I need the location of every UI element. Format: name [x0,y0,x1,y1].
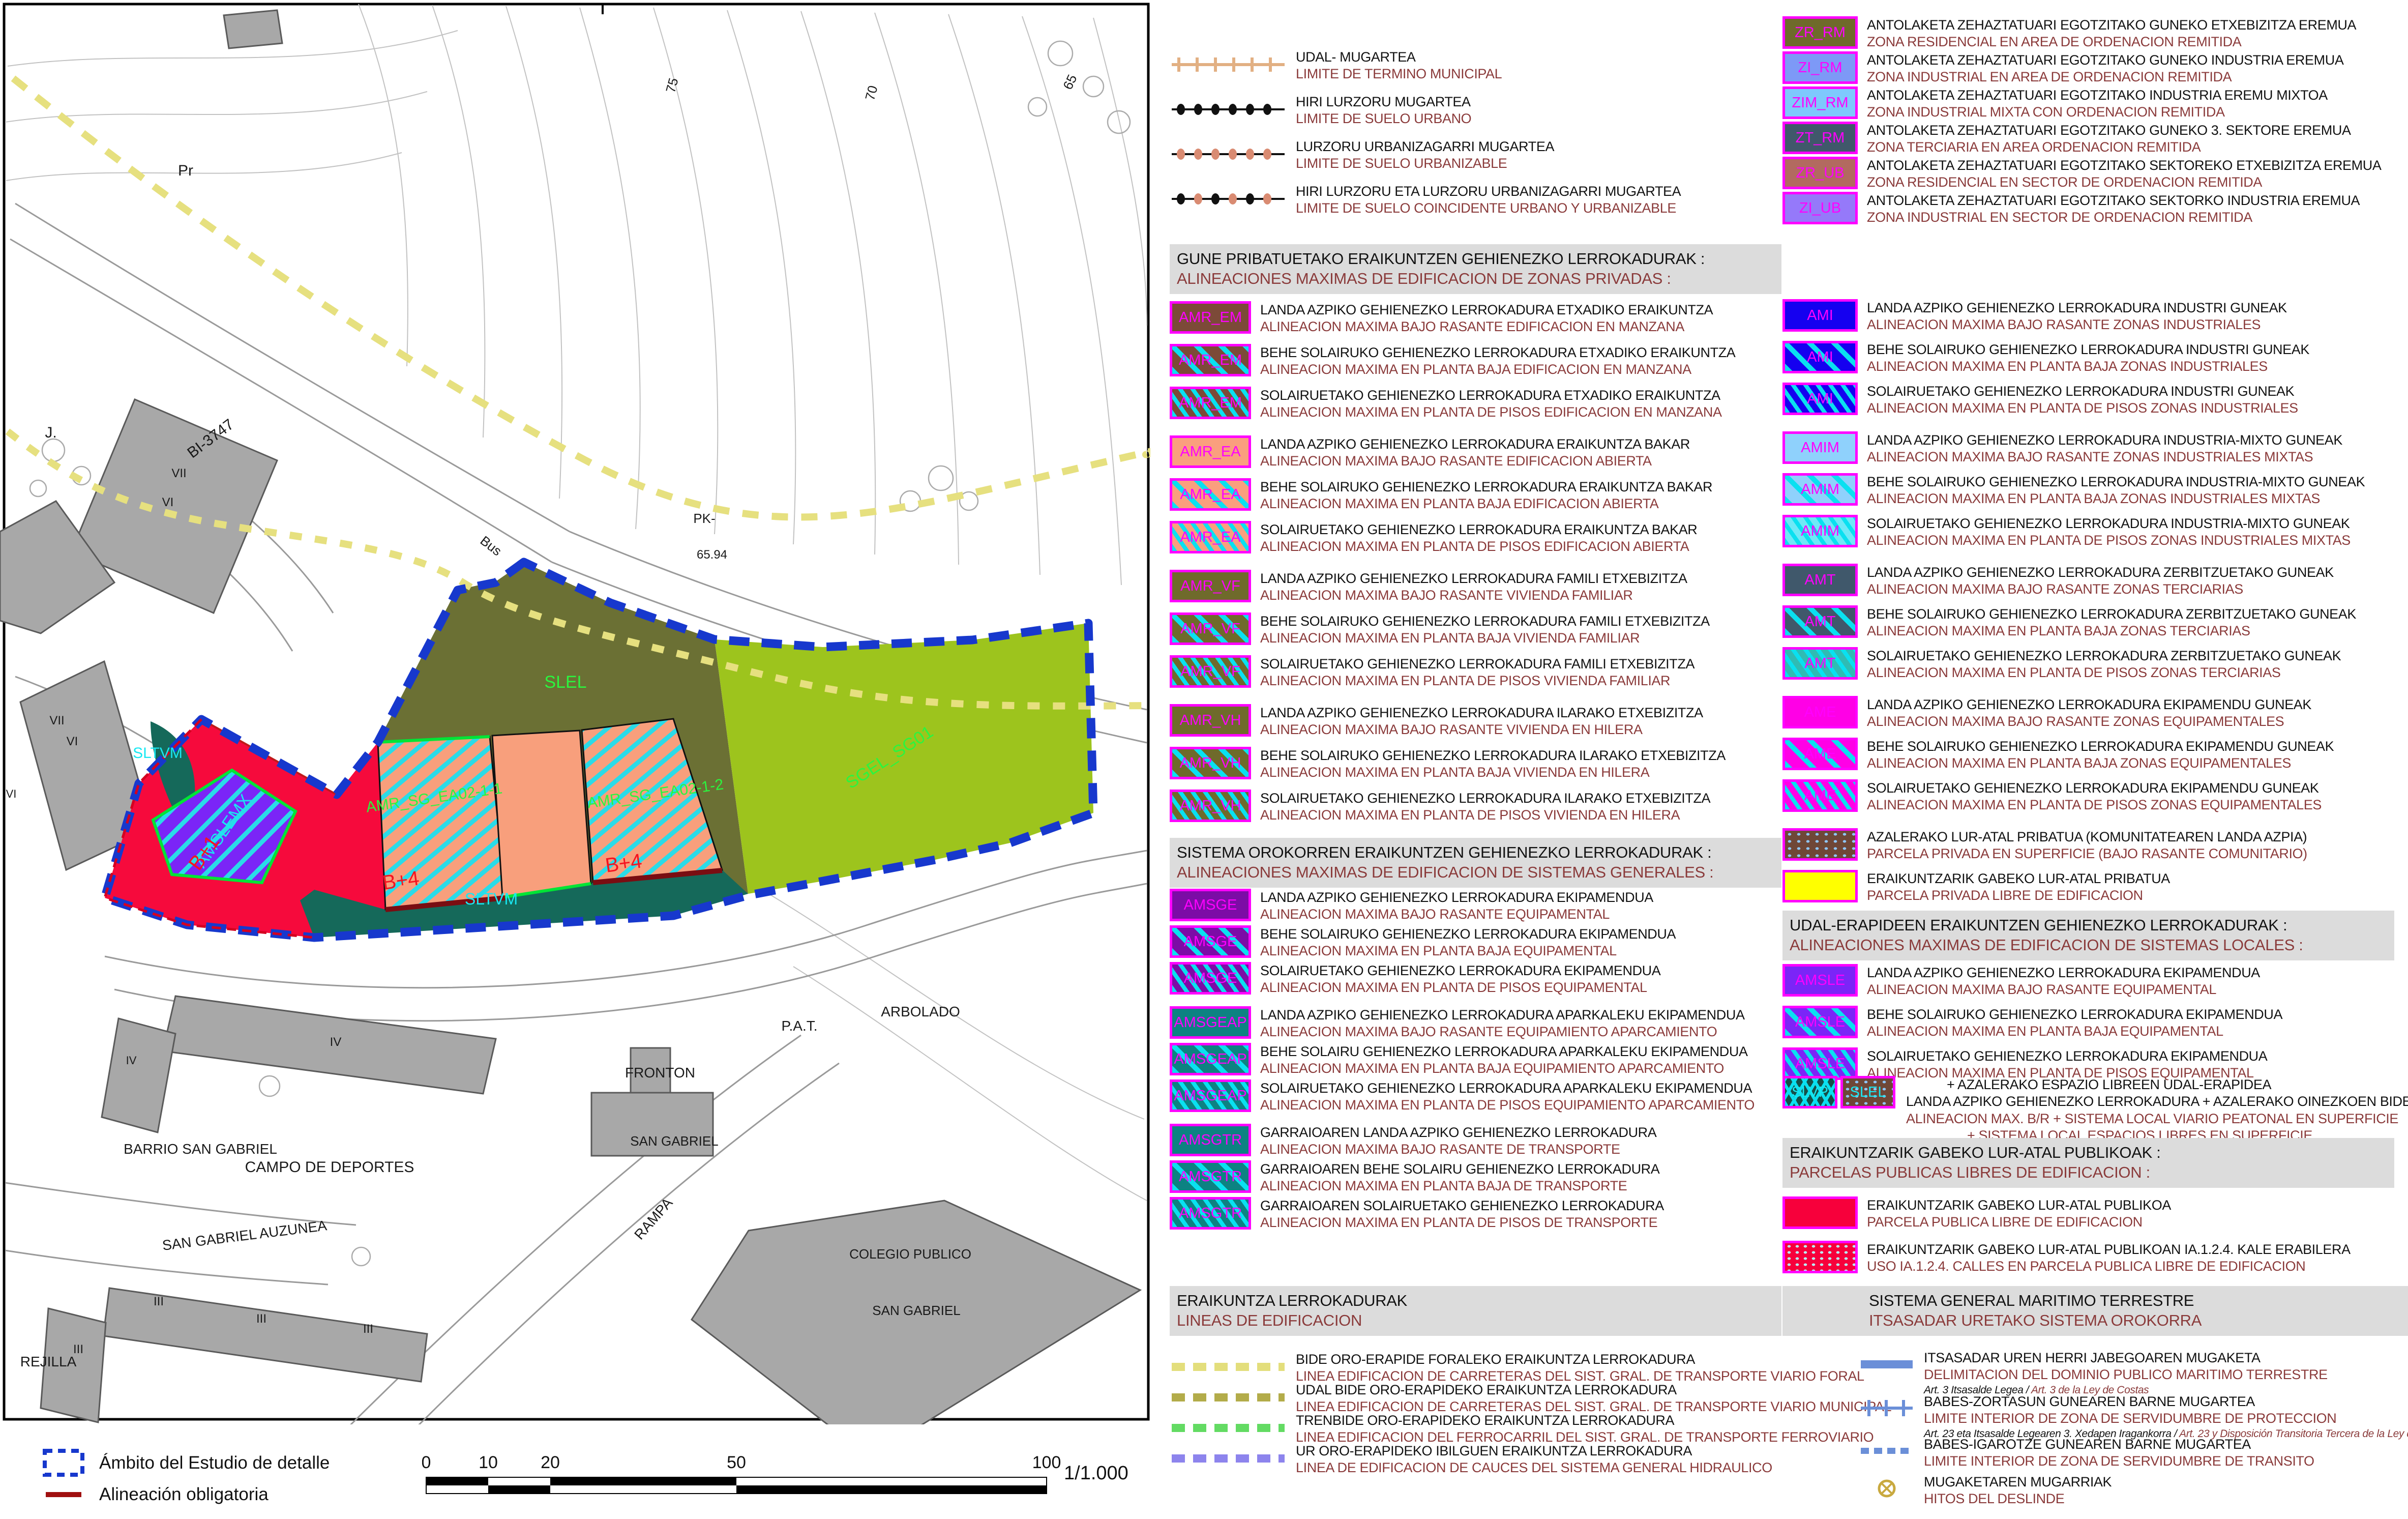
hiri-eta-urbanizagarri-mugartea-icon [1170,183,1287,218]
swatch-zr-rm-solid-icon: ZR_RM [1782,16,1858,49]
item-text-eu: SOLAIRUETAKO GEHIENEZKO LERROKADURA ETXA… [1260,387,1722,404]
map-label-iv: IV [126,1054,137,1067]
item-text-es: ALINEACION MAXIMA EN PLANTA DE PISOS EDI… [1260,538,1697,555]
item-text-eu: UDAL- MUGARTEA [1296,49,1502,66]
legend-item-hiri-eta-urbanizagarri-mugartea: HIRI LURZORU ETA LURZORU URBANIZAGARRI M… [1170,183,1681,218]
swatch-zt-rm-solid-icon: ZT_RM [1782,122,1858,154]
svg-text:0: 0 [422,1454,431,1472]
item-text-eu: LANDA AZPIKO GEHIENEZKO LERROKADURA ERAI… [1260,436,1690,453]
item-text-es: ALINEACION MAXIMA EN PLANTA DE PISOS ZON… [1867,664,2341,681]
legend-item-servidumbre-transito: BABES-IGAROTZE GUNEAREN BARNE MUGARTEALI… [1782,1436,2314,1470]
item-text-eu: BIDE ORO-ERAPIDE FORALEKO ERAIKUNTZA LER… [1296,1351,1864,1368]
swatch-amsge-solid-icon: AMSGE [1170,889,1251,921]
item-text-es: ALINEACION MAXIMA EN PLANTA DE PISOS DE … [1260,1214,1664,1231]
legend-column-left: UDAL- MUGARTEALIMITE DE TERMINO MUNICIPA… [1170,0,1782,1519]
swatch-amsgtr-sparse-icon: AMSGTR [1170,1160,1251,1193]
swatch-amim-dense-icon: AMIM [1782,515,1858,547]
legend-item-parcela-publica-calles: ERAIKUNTZARIK GABEKO LUR-ATAL PUBLIKOAN … [1782,1241,2351,1275]
item-text-es: ALINEACION MAXIMA EN PLANTA BAJA VIVIEND… [1260,764,1726,781]
map-label-65-94: 65.94 [697,548,727,562]
map-label-iii: III [256,1312,266,1326]
swatch-amsle-sparse-icon: AMSLE [1782,1006,1858,1038]
item-text-eu: BABES-IGAROTZE GUNEAREN BARNE MUGARTEA [1924,1436,2314,1453]
map-label-vi: VI [162,495,174,509]
legend-item-zi-rm: ZI_RMANTOLAKETA ZEHAZTATUARI EGOTZITAKO … [1782,51,2343,86]
swatch-amr-vh-sparse-icon: AMR_VH [1170,747,1251,779]
item-text-eu: BABES-ZORTASUN GUNEAREN BARNE MUGARTEA [1924,1393,2408,1410]
item-text-eu: LURZORU URBANIZAGARRI MUGARTEA [1296,138,1554,155]
item-text-es: ALINEACION MAXIMA EN PLANTA DE PISOS EQU… [1260,1097,1755,1114]
item-text-es: ALINEACION MAXIMA EN PLANTA BAJA EDIFICA… [1260,495,1712,512]
svg-text:100: 100 [1032,1454,1061,1472]
item-text-es: LIMITE DE TERMINO MUNICIPAL [1296,66,1502,82]
header-es: ALINEACIONES MAXIMAS DE EDIFICACION DE S… [1177,863,1774,883]
item-text-eu: SOLAIRUETAKO GEHIENEZKO LERROKADURA EKIP… [1867,1048,2267,1065]
header-eu: UDAL-ERAPIDEEN ERAIKUNTZEN GEHIENEZKO LE… [1790,916,2387,936]
swatch-zi-rm-solid-icon: ZI_RM [1782,51,1858,84]
legend-item-amr-vh: AMR_VHSOLAIRUETAKO GEHIENEZKO LERROKADUR… [1170,790,1710,824]
legend-item-amr-ea: AMR_EABEHE SOLAIRUKO GEHIENEZKO LERROKAD… [1170,478,1712,513]
legend-item-dominio-publico-maritimo: ITSASADAR UREN HERRI JABEGOAREN MUGAKETA… [1782,1349,2328,1397]
svg-text:10: 10 [479,1454,498,1472]
legend-item-hiri-lurzoru-mugartea: HIRI LURZORU MUGARTEALIMITE DE SUELO URB… [1170,93,1471,128]
legend-item-amsge: AMSGESOLAIRUETAKO GEHIENEZKO LERROKADURA… [1170,962,1660,997]
item-text-eu: SOLAIRUETAKO GEHIENEZKO LERROKADURA INDU… [1867,515,2351,532]
item-text-es: ALINEACION MAXIMA BAJO RASANTE VIVIENDA … [1260,721,1703,738]
legend-item-ame: AMELANDA AZPIKO GEHIENEZKO LERROKADURA E… [1782,696,2311,731]
item-text-es: ALINEACION MAXIMA EN PLANTA BAJA EQUIPAM… [1260,1060,1748,1077]
legend-item-amr-vf: AMR_VFBEHE SOLAIRUKO GEHIENEZKO LERROKAD… [1170,612,1710,647]
servidumbre-proteccion-icon [1859,1393,1915,1426]
item-text-es: ALINEACION MAXIMA EN PLANTA DE PISOS VIV… [1260,807,1710,824]
legend-item-ami: AMILANDA AZPIKO GEHIENEZKO LERROKADURA I… [1782,299,2287,334]
legend-item-linea-hidraulico: UR ORO-ERAPIDEKO IBILGUEN ERAIKUNTZA LER… [1170,1442,1772,1477]
legend-item-servidumbre-proteccion: BABES-ZORTASUN GUNEAREN BARNE MUGARTEALI… [1782,1393,2408,1441]
swatch-amr-ea-dense-icon: AMR_EA [1170,521,1251,553]
plan-sheet: PrBI-3747J.BusPK-65.94757065VIIVIVIIVIVI… [0,0,2408,1519]
item-text-es: LIMITE DE SUELO COINCIDENTE URBANO Y URB… [1296,200,1681,217]
swatch-ami-solid-icon: AMI [1782,299,1858,332]
item-text-eu: BEHE SOLAIRUKO GEHIENEZKO LERROKADURA IN… [1867,474,2365,490]
legend-ambito: Ámbito del Estudio de detalle [40,1447,330,1479]
map-label-vii: VII [171,466,186,480]
swatch-amr-ea-sparse-icon: AMR_EA [1170,478,1251,511]
linea-hidraulico-icon [1170,1442,1287,1477]
legend-item-amt: AMTSOLAIRUETAKO GEHIENEZKO LERROKADURA Z… [1782,647,2341,682]
swatch-slel: SLEL [1840,1076,1895,1108]
swatch-amr-em-dense-icon: AMR_EM [1170,387,1251,419]
swatch-parcela-publica-calles-reddots-icon [1782,1241,1858,1273]
item-text-eu: HIRI LURZORU ETA LURZORU URBANIZAGARRI M… [1296,183,1681,200]
item-text-es: ZONA INDUSTRIAL MIXTA CON ORDENACION REM… [1867,104,2328,121]
section-header-eraikuntzarik-gabeko-lur-atal-publikoak: ERAIKUNTZARIK GABEKO LUR-ATAL PUBLIKOAK … [1782,1138,2394,1188]
item-text-es: ALINEACION MAXIMA BAJO RASANTE EQUIPAMEN… [1867,981,2260,998]
map-label-barrio-san-gabriel: BARRIO SAN GABRIEL [124,1141,277,1157]
item-text-es: ZONA INDUSTRIAL EN AREA DE ORDENACION RE… [1867,69,2343,85]
map-label-sltvm: SLTVM [133,745,183,762]
item-text-es: DELIMITACION DEL DOMINIO PUBLICO MARITIM… [1924,1366,2328,1383]
item-text-es: ALINEACION MAXIMA EN PLANTA BAJA EDIFICA… [1260,361,1735,378]
header-es: LINEAS DE EDIFICACION [1177,1311,1774,1331]
site-plan-map: PrBI-3747J.BusPK-65.94757065VIIVIVIIVIVI… [0,0,1150,1424]
swatch-amr-vf-sparse-icon: AMR_VF [1170,612,1251,645]
map-label-vii: VII [49,714,64,727]
legend-item-udal-mugartea: UDAL- MUGARTEALIMITE DE TERMINO MUNICIPA… [1170,48,1502,83]
alineacion-label: Alineación obligatoria [99,1484,269,1505]
item-text-es: ALINEACION MAXIMA BAJO RASANTE ZONAS EQU… [1867,713,2311,730]
header-eu: SISTEMA OROKORREN ERAIKUNTZEN GEHIENEZKO… [1177,843,1774,863]
map-label-fronton: FRONTON [625,1065,695,1080]
item-text-es: ZONA RESIDENCIAL EN AREA DE ORDENACION R… [1867,34,2356,50]
legend-item-amr-ea: AMR_EALANDA AZPIKO GEHIENEZKO LERROKADUR… [1170,435,1690,470]
item-text-es: ALINEACION MAXIMA BAJO RASANTE EQUIPAMEN… [1260,906,1653,923]
item-text-eu: BEHE SOLAIRUKO GEHIENEZKO LERROKADURA ET… [1260,344,1735,361]
item-text-es: LIMITE INTERIOR DE ZONA DE SERVIDUMBRE D… [1924,1453,2314,1470]
header-es: PARCELAS PUBLICAS LIBRES DE EDIFICACION … [1790,1163,2387,1183]
legend-item-ame: AMEBEHE SOLAIRUKO GEHIENEZKO LERROKADURA… [1782,738,2334,772]
item-text-eu: BEHE SOLAIRUKO GEHIENEZKO LERROKADURA ER… [1260,479,1712,495]
map-label-colegio-publico: COLEGIO PUBLICO [849,1246,971,1262]
item-text-es: ALINEACION MAXIMA EN PLANTA BAJA VIVIEND… [1260,630,1710,647]
item-text-es: ZONA INDUSTRIAL EN SECTOR DE ORDENACION … [1867,209,2360,226]
item-text-eu: ANTOLAKETA ZEHAZTATUARI EGOTZITAKO SEKTO… [1867,192,2360,209]
legend-item-parcela-privada-libre: ERAIKUNTZARIK GABEKO LUR-ATAL PRIBATUAPA… [1782,870,2170,904]
legend-item-amr-vf: AMR_VFSOLAIRUETAKO GEHIENEZKO LERROKADUR… [1170,655,1694,690]
legend-item-amsgeap: AMSGEAPSOLAIRUETAKO GEHIENEZKO LERROKADU… [1170,1079,1755,1114]
item-text-es: USO IA.1.2.4. CALLES EN PARCELA PUBLICA … [1867,1258,2351,1275]
swatch-parcela-publica-libre-solid-icon [1782,1196,1858,1229]
item-text-es: ALINEACION MAXIMA EN PLANTA DE PISOS ZON… [1867,532,2351,549]
item-text-eu: LANDA AZPIKO GEHIENEZKO LERROKADURA EKIP… [1260,889,1653,906]
swatch-amim-sparse-icon: AMIM [1782,473,1858,506]
legend-item-linea-viario-foral: BIDE ORO-ERAPIDE FORALEKO ERAIKUNTZA LER… [1170,1351,1864,1386]
legend-item-amr-em: AMR_EMBEHE SOLAIRUKO GEHIENEZKO LERROKAD… [1170,344,1735,378]
swatch-ame-dense-icon: AME [1782,779,1858,812]
item-text-es: ALINEACION MAXIMA EN PLANTA DE PISOS ZON… [1867,400,2298,417]
legend-item-amsge: AMSGELANDA AZPIKO GEHIENEZKO LERROKADURA… [1170,889,1653,923]
section-header-eraikuntza-lerrokadurak: ERAIKUNTZA LERROKADURAKLINEAS DE EDIFICA… [1170,1286,1781,1336]
map-label-sltvm: SLTVM [465,890,518,908]
item-text-es: LINEA DE EDIFICACION DE CAUCES DEL SISTE… [1296,1459,1772,1476]
swatch-parcela-privada-superficie-dots-icon [1782,828,1858,861]
item-text-eu: LANDA AZPIKO GEHIENEZKO LERROKADURA ZERB… [1867,564,2334,581]
item-text-es: PARCELA PRIVADA LIBRE DE EDIFICACION [1867,887,2170,904]
item-text-es: ALINEACION MAXIMA BAJO RASANTE ZONAS IND… [1867,449,2342,465]
legend-item-amr-em: AMR_EMLANDA AZPIKO GEHIENEZKO LERROKADUR… [1170,301,1713,336]
ambito-label: Ámbito del Estudio de detalle [99,1453,330,1473]
swatch-amr-vf-dense-icon: AMR_VF [1170,655,1251,688]
map-label-vi: VI [6,787,17,800]
legend-item-parcela-publica-libre: ERAIKUNTZARIK GABEKO LUR-ATAL PUBLIKOAPA… [1782,1196,2171,1231]
item-text-eu: ANTOLAKETA ZEHAZTATUARI EGOTZITAKO GUNEK… [1867,52,2343,69]
svg-text:50: 50 [727,1454,746,1472]
item-text-eu: ANTOLAKETA ZEHAZTATUARI EGOTZITAKO SEKTO… [1867,157,2381,174]
legend-item-lurzoru-urbanizagarri-mugartea: LURZORU URBANIZAGARRI MUGARTEALIMITE DE … [1170,138,1554,173]
item-text-es: ALINEACION MAXIMA EN PLANTA BAJA EQUIPAM… [1260,943,1676,959]
legend-item-slvp-slel: SLVPSLEL+ AZALERAKO ESPAZIO LIBREEN UDAL… [1782,1076,2408,1145]
swatch-amsgtr-dense-icon: AMSGTR [1170,1197,1251,1230]
swatch-zi-ub-solid-icon: ZI_UB [1782,192,1858,224]
legend-item-amsgeap: AMSGEAPLANDA AZPIKO GEHIENEZKO LERROKADU… [1170,1006,1745,1041]
header-es: ITSASADAR URETAKO SISTEMA OROKORRA [1869,1311,2408,1331]
item-text-eu: GARRAIOAREN SOLAIRUETAKO GEHIENEZKO LERR… [1260,1197,1664,1214]
item-text-eu: LANDA AZPIKO GEHIENEZKO LERROKADURA ILAR… [1260,705,1703,721]
item-text-es: ALINEACION MAXIMA BAJO RASANTE ZONAS TER… [1867,581,2334,598]
item-text-es: ALINEACION MAXIMA EN PLANTA DE PISOS ZON… [1867,797,2322,813]
item-text-eu: BEHE SOLAIRUKO GEHIENEZKO LERROKADURA IL… [1260,747,1726,764]
swatch-amim-solid-icon: AMIM [1782,431,1858,464]
legend-item-zt-rm: ZT_RMANTOLAKETA ZEHAZTATUARI EGOTZITAKO … [1782,122,2351,156]
legend-item-amr-vh: AMR_VHBEHE SOLAIRUKO GEHIENEZKO LERROKAD… [1170,747,1726,781]
swatch-amr-vh-solid-icon: AMR_VH [1170,704,1251,737]
item-text-eu: GARRAIOAREN LANDA AZPIKO GEHIENEZKO LERR… [1260,1124,1656,1141]
swatch-zr-ub-solid-icon: ZR_UB [1782,157,1858,189]
legend-item-amr-vh: AMR_VHLANDA AZPIKO GEHIENEZKO LERROKADUR… [1170,704,1703,739]
header-eu: ERAIKUNTZARIK GABEKO LUR-ATAL PUBLIKOAK … [1790,1143,2387,1163]
dominio-publico-maritimo-icon [1859,1349,1915,1382]
item-text-es: ALINEACION MAXIMA EN PLANTA DE PISOS EQU… [1260,979,1660,996]
item-text-es: LIMITE DE SUELO URBANO [1296,110,1471,127]
swatch-amsge-sparse-icon: AMSGE [1170,925,1251,958]
alineacion-icon [40,1484,88,1505]
item-text-eu: AZALERAKO LUR-ATAL PRIBATUA (KOMUNITATEA… [1867,829,2307,845]
map-label-campo-de-deportes: CAMPO DE DEPORTES [245,1159,414,1176]
swatch-ame-sparse-icon: AME [1782,738,1858,770]
item-text-eu: LANDA AZPIKO GEHIENEZKO LERROKADURA ETXA… [1260,302,1713,318]
item-text-es: ALINEACION MAX. B/R + SISTEMA LOCAL VIAR… [1906,1111,2408,1127]
map-label-pr: Pr [178,162,193,179]
swatch-amt-solid-icon: AMT [1782,564,1858,596]
item-text-eu: SOLAIRUETAKO GEHIENEZKO LERROKADURA ILAR… [1260,790,1710,807]
header-es: ALINEACIONES MAXIMAS DE EDIFICACION DE Z… [1177,269,1774,289]
legend-item-amim: AMIMBEHE SOLAIRUKO GEHIENEZKO LERROKADUR… [1782,473,2365,508]
item-text-eu: BEHE SOLAIRUKO GEHIENEZKO LERROKADURA FA… [1260,613,1710,630]
item-text-es: ALINEACION MAXIMA EN PLANTA BAJA EQUIPAM… [1867,1023,2282,1040]
legend-item-zi-ub: ZI_UBANTOLAKETA ZEHAZTATUARI EGOTZITAKO … [1782,192,2360,226]
hitos-deslinde-icon [1859,1473,1915,1506]
zone-salmon [492,731,591,897]
linea-viario-municipal-icon [1170,1381,1287,1416]
swatch-slvp: SLVP [1782,1076,1837,1108]
item-pre: + AZALERAKO ESPAZIO LIBREEN UDAL-ERAPIDE… [1906,1076,2408,1093]
item-text-es: ZONA RESIDENCIAL EN SECTOR DE ORDENACION… [1867,174,2381,191]
svg-text:20: 20 [541,1454,560,1472]
swatch-zim-rm-solid-icon: ZIM_RM [1782,86,1858,119]
swatch-amr-ea-solid-icon: AMR_EA [1170,435,1251,468]
item-text-es: ALINEACION MAXIMA EN PLANTA BAJA ZONAS I… [1867,358,2309,375]
legend-item-amr-vf: AMR_VFLANDA AZPIKO GEHIENEZKO LERROKADUR… [1170,570,1687,604]
legend-item-amsle: AMSLEBEHE SOLAIRUKO GEHIENEZKO LERROKADU… [1782,1006,2282,1040]
swatch-ami-dense-icon: AMI [1782,383,1858,415]
swatch-amsgeap-solid-icon: AMSGEAP [1170,1006,1251,1039]
swatch-parcela-privada-libre-solid-icon [1782,870,1858,902]
linea-ferroviario-icon [1170,1412,1287,1447]
legend-item-zr-ub: ZR_UBANTOLAKETA ZEHAZTATUARI EGOTZITAKO … [1782,157,2381,191]
linea-viario-foral-icon [1170,1351,1287,1386]
item-text-eu: LANDA AZPIKO GEHIENEZKO LERROKADURA + AZ… [1906,1093,2408,1110]
swatch-amsgeap-sparse-icon: AMSGEAP [1170,1043,1251,1075]
item-text-eu: BEHE SOLAIRUKO GEHIENEZKO LERROKADURA ZE… [1867,606,2356,623]
legend-item-amsgtr: AMSGTRGARRAIOAREN BEHE SOLAIRU GEHIENEZK… [1170,1160,1659,1195]
item-text-es: ALINEACION MAXIMA BAJO RASANTE EDIFICACI… [1260,318,1713,335]
item-text-es: ALINEACION MAXIMA BAJO RASANTE VIVIENDA … [1260,587,1687,604]
map-label-pk-: PK- [693,511,715,526]
section-header-gune-pribatuetako-eraikuntzen-gehienezko: GUNE PRIBATUETAKO ERAIKUNTZEN GEHIENEZKO… [1170,244,1781,294]
scale-ratio: 1/1.000 [1064,1463,1128,1484]
item-text-es: ALINEACION MAXIMA EN PLANTA DE PISOS EDI… [1260,404,1722,421]
item-text-eu: BEHE SOLAIRUKO GEHIENEZKO LERROKADURA EK… [1867,1006,2282,1023]
map-label-j-: J. [45,424,56,441]
map-label-rejilla: REJILLA [20,1354,77,1369]
item-text-eu: LANDA AZPIKO GEHIENEZKO LERROKADURA FAMI… [1260,570,1687,587]
item-text-eu: SOLAIRUETAKO GEHIENEZKO LERROKADURA APAR… [1260,1080,1755,1097]
map-label-iii: III [154,1295,164,1308]
legend-item-amsle: AMSLELANDA AZPIKO GEHIENEZKO LERROKADURA… [1782,964,2260,999]
item-text-eu: ANTOLAKETA ZEHAZTATUARI EGOTZITAKO INDUS… [1867,87,2328,104]
item-text-es: LIMITE INTERIOR DE ZONA DE SERVIDUMBRE D… [1924,1410,2408,1427]
item-text-eu: ITSASADAR UREN HERRI JABEGOAREN MUGAKETA [1924,1350,2328,1366]
udal-mugartea-icon [1170,48,1287,83]
item-text-eu: BEHE SOLAIRUKO GEHIENEZKO LERROKADURA IN… [1867,341,2309,358]
legend-item-linea-ferroviario: TRENBIDE ORO-ERAPIDEKO ERAIKUNTZA LERROK… [1170,1412,1874,1447]
item-text-es: PARCELA PRIVADA EN SUPERFICIE (BAJO RASA… [1867,845,2307,862]
legend-item-hitos-deslinde: MUGAKETAREN MUGARRIAKHITOS DEL DESLINDE [1782,1473,2112,1508]
legend-alineacion: Alineación obligatoria [40,1484,269,1505]
scale-bar: 0 10 20 50 100 1/1.000 [422,1454,1185,1510]
swatch-combo-icon: SLVPSLEL [1782,1076,1897,1108]
item-text-es: PARCELA PUBLICA LIBRE DE EDIFICACION [1867,1214,2171,1231]
item-text-es: LIMITE DE SUELO URBANIZABLE [1296,155,1554,172]
legend-item-amt: AMTLANDA AZPIKO GEHIENEZKO LERROKADURA Z… [1782,564,2334,598]
hiri-lurzoru-mugartea-icon [1170,93,1287,128]
item-text-eu: ANTOLAKETA ZEHAZTATUARI EGOTZITAKO GUNEK… [1867,122,2351,139]
header-es: ALINEACIONES MAXIMAS DE EDIFICACION DE S… [1790,936,2387,955]
section-header-sistema-orokorren-eraikuntzen-gehienezko: SISTEMA OROKORREN ERAIKUNTZEN GEHIENEZKO… [1170,838,1781,888]
item-text-eu: BEHE SOLAIRU GEHIENEZKO LERROKADURA APAR… [1260,1043,1748,1060]
legend-item-ame: AMESOLAIRUETAKO GEHIENEZKO LERROKADURA E… [1782,779,2322,814]
item-text-eu: LANDA AZPIKO GEHIENEZKO LERROKADURA INDU… [1867,300,2287,316]
map-label-san-gabriel: SAN GABRIEL [630,1133,718,1149]
legend-item-amr-em: AMR_EMSOLAIRUETAKO GEHIENEZKO LERROKADUR… [1170,387,1722,421]
legend-item-parcela-privada-superficie: AZALERAKO LUR-ATAL PRIBATUA (KOMUNITATEA… [1782,828,2307,863]
item-text-eu: SOLAIRUETAKO GEHIENEZKO LERROKADURA INDU… [1867,383,2298,400]
swatch-amsgtr-solid-icon: AMSGTR [1170,1124,1251,1156]
item-text-eu: BEHE SOLAIRUKO GEHIENEZKO LERROKADURA EK… [1867,738,2334,755]
item-text-es: ALINEACION MAXIMA EN PLANTA BAJA ZONAS T… [1867,623,2356,639]
item-text-eu: SOLAIRUETAKO GEHIENEZKO LERROKADURA FAMI… [1260,656,1694,673]
swatch-amsle-dense-icon: AMSLE [1782,1047,1858,1080]
item-text-es: HITOS DEL DESLINDE [1924,1491,2112,1507]
item-text-es: ALINEACION MAXIMA EN PLANTA BAJA DE TRAN… [1260,1178,1659,1194]
header-eu: ERAIKUNTZA LERROKADURAK [1177,1291,1774,1311]
item-text-eu: ERAIKUNTZARIK GABEKO LUR-ATAL PUBLIKOAN … [1867,1241,2351,1258]
legend-item-amsgtr: AMSGTRGARRAIOAREN SOLAIRUETAKO GEHIENEZK… [1170,1197,1664,1232]
legend-item-zr-rm: ZR_RMANTOLAKETA ZEHAZTATUARI EGOTZITAKO … [1782,16,2356,51]
legend-item-amim: AMIMLANDA AZPIKO GEHIENEZKO LERROKADURA … [1782,431,2342,466]
swatch-amt-dense-icon: AMT [1782,647,1858,680]
ambito-icon [40,1447,88,1479]
swatch-amr-vh-dense-icon: AMR_VH [1170,790,1251,822]
item-text-eu: LANDA AZPIKO GEHIENEZKO LERROKADURA INDU… [1867,432,2342,449]
swatch-amt-sparse-icon: AMT [1782,605,1858,638]
item-text-eu: LANDA AZPIKO GEHIENEZKO LERROKADURA EKIP… [1867,965,2260,981]
item-text-eu: SOLAIRUETAKO GEHIENEZKO LERROKADURA EKIP… [1867,780,2322,797]
legend-item-zim-rm: ZIM_RMANTOLAKETA ZEHAZTATUARI EGOTZITAKO… [1782,86,2328,121]
section-header-udal-erapideen-eraikuntzen-gehienezko-le: UDAL-ERAPIDEEN ERAIKUNTZEN GEHIENEZKO LE… [1782,911,2394,960]
item-text-es: ALINEACION MAXIMA BAJO RASANTE EDIFICACI… [1260,453,1690,470]
servidumbre-transito-icon [1859,1436,1915,1469]
item-text-es: ZONA TERCIARIA EN AREA ORDENACION REMITI… [1867,139,2351,156]
map-label-iii: III [363,1322,373,1336]
item-text-eu: SOLAIRUETAKO GEHIENEZKO LERROKADURA EKIP… [1260,962,1660,979]
item-text-es: ALINEACION MAXIMA BAJO RASANTE EQUIPAMIE… [1260,1024,1745,1040]
swatch-amr-vf-solid-icon: AMR_VF [1170,570,1251,602]
lurzoru-urbanizagarri-mugartea-icon [1170,138,1287,173]
item-text-eu: BEHE SOLAIRUKO GEHIENEZKO LERROKADURA EK… [1260,926,1676,943]
legend-column-right: ZR_RMANTOLAKETA ZEHAZTATUARI EGOTZITAKO … [1782,0,2408,1519]
header-eu: SISTEMA GENERAL MARITIMO TERRESTRE [1869,1291,2408,1311]
item-text-eu: GARRAIOAREN BEHE SOLAIRU GEHIENEZKO LERR… [1260,1161,1659,1178]
map-label-san-gabriel: SAN GABRIEL [872,1303,960,1318]
swatch-ame-solid-icon: AME [1782,696,1858,728]
item-text-eu: SOLAIRUETAKO GEHIENEZKO LERROKADURA ZERB… [1867,648,2341,664]
map-label-p-a-t-: P.A.T. [781,1018,817,1034]
swatch-ami-sparse-icon: AMI [1782,341,1858,373]
item-text-eu: SOLAIRUETAKO GEHIENEZKO LERROKADURA ERAI… [1260,521,1697,538]
item-text-es: ALINEACION MAXIMA BAJO RASANTE DE TRANSP… [1260,1141,1656,1158]
item-text-eu: ERAIKUNTZARIK GABEKO LUR-ATAL PRIBATUA [1867,870,2170,887]
item-text-es: ALINEACION MAXIMA BAJO RASANTE ZONAS IND… [1867,316,2287,333]
item-text-eu: UR ORO-ERAPIDEKO IBILGUEN ERAIKUNTZA LER… [1296,1443,1772,1459]
item-text-eu: MUGAKETAREN MUGARRIAK [1924,1474,2112,1491]
legend-item-ami: AMISOLAIRUETAKO GEHIENEZKO LERROKADURA I… [1782,383,2298,417]
scale-bar-blocks [426,1477,1047,1494]
legend-item-amsgeap: AMSGEAPBEHE SOLAIRU GEHIENEZKO LERROKADU… [1170,1043,1748,1077]
legend-item-amsgtr: AMSGTRGARRAIOAREN LANDA AZPIKO GEHIENEZK… [1170,1124,1656,1158]
item-text-eu: LANDA AZPIKO GEHIENEZKO LERROKADURA EKIP… [1867,696,2311,713]
legend-item-ami: AMIBEHE SOLAIRUKO GEHIENEZKO LERROKADURA… [1782,341,2309,375]
swatch-amr-em-solid-icon: AMR_EM [1170,301,1251,334]
item-text-es: ALINEACION MAXIMA EN PLANTA BAJA ZONAS E… [1867,755,2334,772]
legend-item-amt: AMTBEHE SOLAIRUKO GEHIENEZKO LERROKADURA… [1782,605,2356,640]
map-label-iv: IV [330,1035,342,1049]
legend-item-amim: AMIMSOLAIRUETAKO GEHIENEZKO LERROKADURA … [1782,515,2351,549]
map-label-slel: SLEL [544,673,586,692]
legend-item-amsge: AMSGEBEHE SOLAIRUKO GEHIENEZKO LERROKADU… [1170,925,1676,960]
legend-item-amr-ea: AMR_EASOLAIRUETAKO GEHIENEZKO LERROKADUR… [1170,521,1697,556]
item-text-eu: ANTOLAKETA ZEHAZTATUARI EGOTZITAKO GUNEK… [1867,17,2356,34]
swatch-amsgeap-dense-icon: AMSGEAP [1170,1079,1251,1112]
map-label-arbolado: ARBOLADO [881,1004,960,1019]
map-label-vi: VI [67,735,78,748]
swatch-amsge-dense-icon: AMSGE [1170,962,1251,995]
swatch-amsle-solid-icon: AMSLE [1782,964,1858,997]
item-text-es: ALINEACION MAXIMA EN PLANTA DE PISOS VIV… [1260,673,1694,689]
item-text-eu: HIRI LURZORU MUGARTEA [1296,94,1471,110]
item-text-es: ALINEACION MAXIMA EN PLANTA BAJA ZONAS I… [1867,490,2365,507]
swatch-amr-em-sparse-icon: AMR_EM [1170,344,1251,376]
header-eu: GUNE PRIBATUETAKO ERAIKUNTZEN GEHIENEZKO… [1177,249,1774,269]
section-header-sistema-general-maritimo-terrestre: SISTEMA GENERAL MARITIMO TERRESTREITSASA… [1782,1286,2408,1336]
item-text-eu: LANDA AZPIKO GEHIENEZKO LERROKADURA APAR… [1260,1007,1745,1024]
item-text-eu: ERAIKUNTZARIK GABEKO LUR-ATAL PUBLIKOA [1867,1197,2171,1214]
